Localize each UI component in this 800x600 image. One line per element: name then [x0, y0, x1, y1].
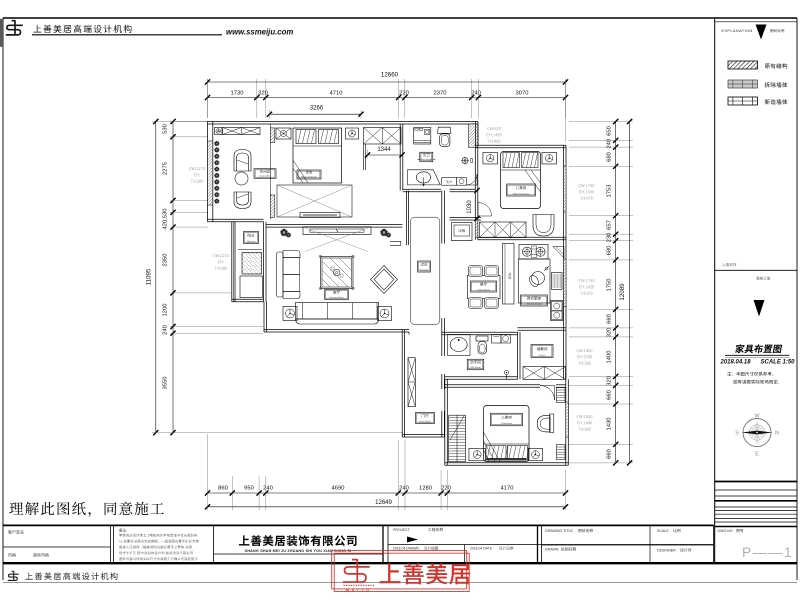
svg-text:E: E: [755, 452, 759, 458]
svg-text:2350: 2350: [163, 254, 169, 267]
svg-text:PROJECT: PROJECT: [393, 528, 411, 532]
svg-text:4710: 4710: [330, 90, 343, 96]
svg-text:Western Kitchen: Western Kitchen: [526, 302, 543, 305]
svg-text:Child Room: Child Room: [501, 423, 513, 425]
svg-text:2018.04 DRAWN: 2018.04 DRAWN: [393, 547, 419, 551]
svg-text:S: S: [735, 431, 739, 437]
svg-text:240: 240: [163, 325, 169, 335]
svg-text:SCALE: SCALE: [657, 529, 669, 533]
svg-text:Dining Room: Dining Room: [477, 289, 490, 291]
svg-text:Wet Room: Wet Room: [470, 366, 480, 369]
svg-text:4170: 4170: [501, 486, 514, 492]
svg-text:2275: 2275: [163, 162, 169, 175]
svg-text:1400: 1400: [607, 351, 613, 364]
svg-text:SCALE 1:50: SCALE 1:50: [761, 359, 796, 365]
svg-text:860: 860: [218, 486, 228, 492]
svg-text:1030: 1030: [467, 200, 473, 214]
svg-text:Passage: Passage: [420, 269, 429, 271]
svg-text:Closet: Closet: [539, 354, 546, 357]
svg-text:320: 320: [258, 90, 268, 96]
svg-text:420,530: 420,530: [163, 209, 169, 230]
svg-text:240: 240: [399, 486, 409, 492]
svg-text:3266: 3266: [310, 105, 324, 111]
svg-text:DRAWING TITLE: DRAWING TITLE: [545, 529, 574, 533]
svg-text:Drawing Room: Drawing Room: [329, 296, 344, 299]
svg-text:240: 240: [471, 90, 481, 96]
svg-text:3070: 3070: [516, 90, 529, 96]
svg-text:1753: 1753: [607, 185, 613, 198]
svg-text:N: N: [775, 431, 779, 437]
svg-text:680: 680: [607, 246, 613, 256]
svg-text:2370: 2370: [434, 90, 447, 96]
svg-text:12660: 12660: [381, 72, 399, 79]
svg-text:530: 530: [163, 124, 169, 134]
svg-text:1344: 1344: [377, 147, 391, 153]
svg-text:660: 660: [607, 449, 613, 459]
svg-text:320: 320: [607, 328, 613, 338]
svg-text:1430: 1430: [607, 418, 613, 431]
svg-text:Bath Room: Bath Room: [421, 158, 432, 161]
svg-text:DESIGNER: DESIGNER: [657, 549, 676, 553]
svg-text:660: 660: [607, 390, 613, 400]
svg-text:Master bedroom: Master bedroom: [301, 175, 317, 178]
svg-text:3550: 3550: [163, 377, 169, 390]
svg-text:2018.04 DATE: 2018.04 DATE: [470, 547, 493, 551]
svg-text:DRAWN: DRAWN: [545, 548, 559, 552]
svg-text:Front Porch: Front Porch: [419, 420, 431, 423]
svg-text:Balcony: Balcony: [247, 241, 256, 243]
svg-text:DWG.NO: DWG.NO: [718, 529, 733, 533]
svg-text:P——1: P——1: [742, 544, 793, 560]
svg-text:1730: 1730: [231, 90, 244, 96]
svg-text:4690: 4690: [332, 486, 345, 492]
svg-text:650: 650: [607, 126, 613, 136]
svg-text:320: 320: [607, 376, 613, 386]
svg-text:www.ssmeiju.com: www.ssmeiju.com: [226, 28, 293, 37]
svg-text:657: 657: [607, 220, 613, 230]
svg-text:220: 220: [441, 486, 451, 492]
svg-text:220: 220: [399, 90, 409, 96]
svg-text:2018.04.18: 2018.04.18: [720, 359, 752, 365]
svg-text:1280: 1280: [419, 486, 432, 492]
svg-text:680: 680: [607, 152, 613, 162]
svg-text:1750: 1750: [607, 279, 613, 292]
svg-text:12649: 12649: [375, 500, 392, 506]
svg-text:240: 240: [263, 486, 273, 492]
svg-text:Older Kids Room: Older Kids Room: [513, 192, 530, 195]
svg-text:660: 660: [607, 314, 613, 324]
svg-text:950: 950: [244, 486, 254, 492]
svg-text:1200: 1200: [163, 304, 169, 317]
svg-text:11095: 11095: [146, 268, 153, 285]
svg-text:EXPLANATION: EXPLANATION: [722, 28, 753, 33]
svg-text:12089: 12089: [619, 283, 626, 301]
svg-text:Leisure Area: Leisure Area: [259, 175, 272, 178]
svg-text:M E I J U: M E I J U: [346, 589, 370, 593]
